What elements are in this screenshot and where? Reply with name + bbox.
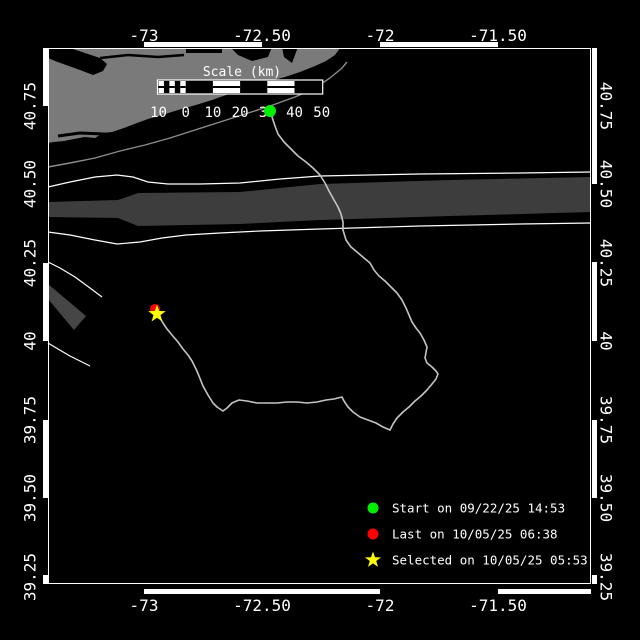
border-segment	[592, 420, 597, 498]
bay-mid	[186, 47, 222, 53]
top-axis-label: -72.50	[233, 26, 291, 45]
legend-item: Selected on 10/05/25 05:53	[365, 552, 588, 568]
circle-legend-icon	[368, 529, 379, 540]
scale-cell-midline	[180, 86, 185, 88]
scale-tick-label: 40	[286, 105, 303, 121]
scale-cell-midline	[169, 86, 174, 88]
right-axis-label: 39.25	[596, 553, 615, 601]
bottom-axis-label: -73	[130, 596, 159, 615]
left-axis-label: 40.50	[21, 160, 40, 208]
legend-label: Selected on 10/05/25 05:53	[392, 553, 588, 568]
scale-segment-midline	[213, 86, 240, 88]
border-segment	[592, 262, 597, 341]
right-axis-label: 39.75	[596, 396, 615, 444]
left-axis-label: 39.25	[21, 553, 40, 601]
border-segment	[592, 48, 597, 184]
legend: Start on 09/22/25 14:53Last on 10/05/25 …	[365, 501, 588, 568]
scale-tick-label: 0	[181, 105, 189, 121]
left-axis-label: 40	[21, 331, 40, 350]
legend-item: Start on 09/22/25 14:53	[368, 501, 566, 516]
track-polyline[interactable]	[158, 117, 438, 430]
scale-segment-midline	[267, 86, 294, 88]
southwest-line	[48, 343, 90, 366]
bottom-axis-label: -71.50	[469, 596, 527, 615]
legend-item: Last on 10/05/25 06:38	[368, 527, 558, 542]
scale-tick-label: 10	[150, 105, 167, 121]
bottom-axis-label: -72.50	[233, 596, 291, 615]
right-axis-label: 40.50	[596, 160, 615, 208]
legend-label: Start on 09/22/25 14:53	[392, 501, 565, 516]
circle-legend-icon	[368, 503, 379, 514]
bottom-axis-label: -72	[366, 596, 395, 615]
legend-label: Last on 10/05/25 06:38	[392, 527, 558, 542]
right-axis-label: 40.75	[596, 82, 615, 130]
traffic-separation-zone	[48, 177, 591, 330]
border-segment	[498, 589, 591, 594]
border-segment	[43, 48, 48, 106]
top-axis-label: -72	[366, 26, 395, 45]
star-legend-icon	[365, 552, 381, 567]
scale-cell-midline	[159, 86, 164, 88]
scale-bar-title: Scale (km)	[203, 65, 281, 80]
border-segment	[43, 263, 48, 341]
right-axis-label: 39.50	[596, 474, 615, 522]
left-axis-label: 40.25	[21, 239, 40, 287]
fairway-lower-line	[48, 223, 591, 244]
top-axis-label: -71.50	[469, 26, 527, 45]
southwest-lane-band	[48, 284, 86, 330]
tracker-map-canvas[interactable]: Scale (km)1001020304050 -73-72.50-72-71.…	[0, 0, 640, 640]
left-axis-label: 39.75	[21, 396, 40, 444]
top-axis-label: -73	[130, 26, 159, 45]
land-layer	[48, 47, 340, 143]
border-segment	[43, 575, 48, 584]
right-axis-label: 40	[596, 331, 615, 350]
map-viewport: Scale (km)1001020304050 -73-72.50-72-71.…	[0, 0, 640, 640]
left-axis-label: 39.50	[21, 474, 40, 522]
scale-tick-label: 50	[313, 105, 330, 121]
start-marker[interactable]	[264, 105, 276, 117]
scale-tick-label: 20	[232, 105, 249, 121]
left-axis-label: 40.75	[21, 82, 40, 130]
scale-tick-label: 10	[204, 105, 221, 121]
border-segment	[43, 420, 48, 498]
right-axis-label: 40.25	[596, 239, 615, 287]
drifter-track[interactable]	[158, 117, 438, 430]
border-segment	[592, 575, 597, 584]
border-segment	[144, 589, 380, 594]
separation-zone-band	[48, 177, 591, 226]
